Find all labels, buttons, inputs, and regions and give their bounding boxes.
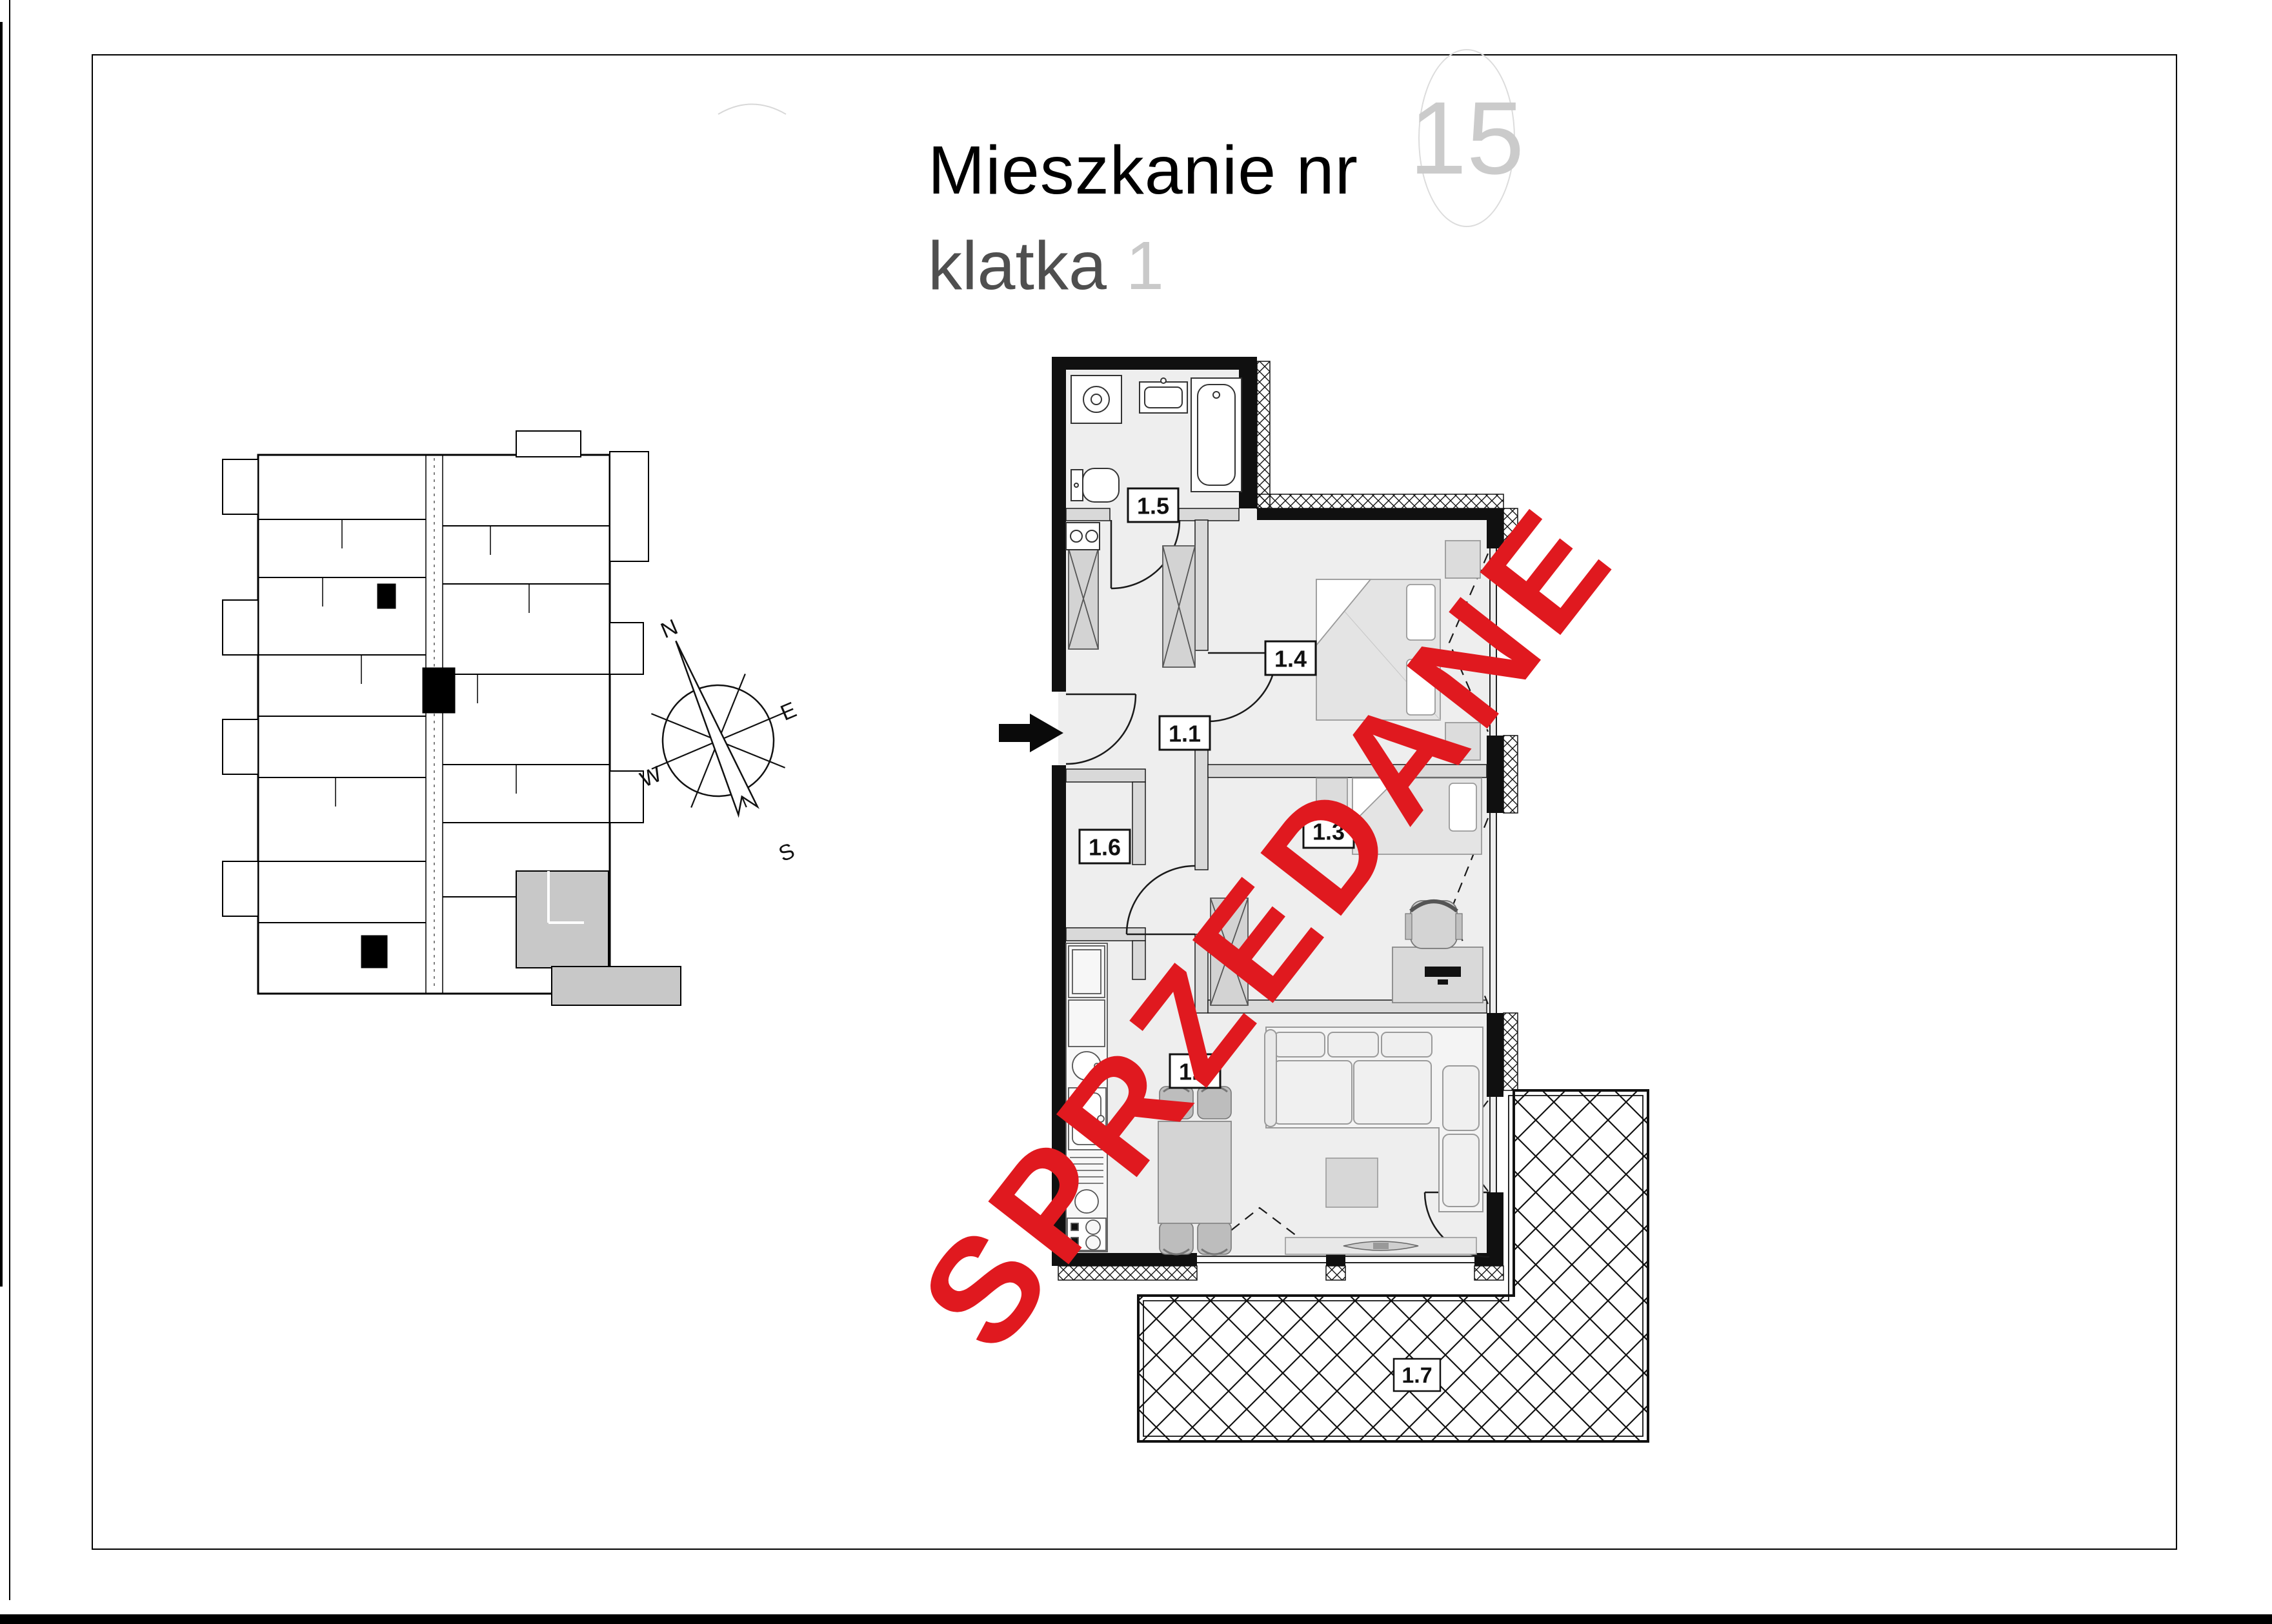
svg-text:1.7: 1.7 bbox=[1402, 1363, 1432, 1388]
room-label-1-4: 1.4 bbox=[1265, 641, 1316, 675]
svg-text:1.1: 1.1 bbox=[1169, 721, 1201, 747]
room-label-1-5: 1.5 bbox=[1128, 488, 1178, 522]
bathtub-icon bbox=[1191, 378, 1242, 492]
room-label-1-1: 1.1 bbox=[1160, 716, 1210, 750]
washing-machine-icon bbox=[1071, 376, 1121, 423]
highlighted-terrace bbox=[552, 967, 681, 1005]
desk-chair-icon bbox=[1405, 901, 1462, 948]
wardrobe-hall-left bbox=[1069, 548, 1098, 649]
building-overview-plan bbox=[223, 431, 681, 1005]
room-label-1-6: 1.6 bbox=[1080, 830, 1130, 863]
wardrobe-hall-right bbox=[1163, 546, 1195, 667]
coffee-table-icon bbox=[1326, 1158, 1378, 1207]
tv-console-icon bbox=[1285, 1238, 1476, 1254]
svg-text:1.6: 1.6 bbox=[1089, 834, 1121, 861]
svg-text:1.5: 1.5 bbox=[1137, 493, 1169, 519]
svg-text:1.4: 1.4 bbox=[1274, 646, 1307, 672]
compass-north-label: N bbox=[658, 615, 681, 644]
entrance-arrow-icon bbox=[999, 714, 1063, 752]
floor-plan-sheet: { "header": { "title": "Mieszkanie nr", … bbox=[0, 0, 2272, 1624]
toilet-icon bbox=[1071, 468, 1119, 502]
fridge-icon bbox=[1069, 946, 1105, 997]
faint-circle-arc bbox=[718, 105, 786, 115]
compass-south-label: S bbox=[775, 838, 798, 867]
compass-east-label: E bbox=[777, 697, 800, 726]
sink-icon bbox=[1140, 378, 1187, 413]
gas-hob-icon bbox=[1066, 523, 1100, 550]
desk-icon bbox=[1392, 947, 1483, 1003]
floor-plan-drawing: N E S W bbox=[0, 0, 2272, 1624]
room-label-1-7: 1.7 bbox=[1394, 1359, 1440, 1391]
